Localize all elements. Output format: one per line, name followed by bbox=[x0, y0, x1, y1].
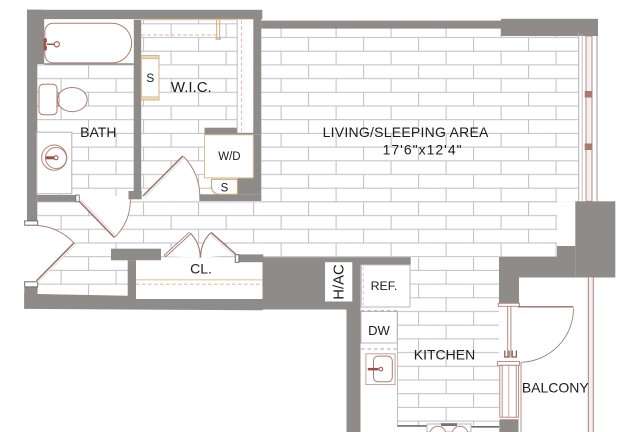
svg-text:KITCHEN: KITCHEN bbox=[414, 347, 475, 363]
svg-text:LIVING/SLEEPING AREA: LIVING/SLEEPING AREA bbox=[323, 124, 489, 140]
svg-text:S: S bbox=[221, 183, 229, 195]
svg-text:BALCONY: BALCONY bbox=[522, 380, 590, 396]
svg-text:W.I.C.: W.I.C. bbox=[171, 79, 212, 96]
svg-text:BATH: BATH bbox=[80, 124, 116, 140]
svg-text:W/D: W/D bbox=[218, 151, 240, 163]
svg-text:17'6"x12'4": 17'6"x12'4" bbox=[383, 141, 463, 157]
svg-text:DW: DW bbox=[368, 323, 390, 338]
svg-text:H/AC: H/AC bbox=[332, 264, 348, 300]
svg-text:S: S bbox=[146, 71, 154, 85]
svg-text:REF.: REF. bbox=[371, 279, 398, 293]
svg-text:CL.: CL. bbox=[190, 261, 212, 277]
